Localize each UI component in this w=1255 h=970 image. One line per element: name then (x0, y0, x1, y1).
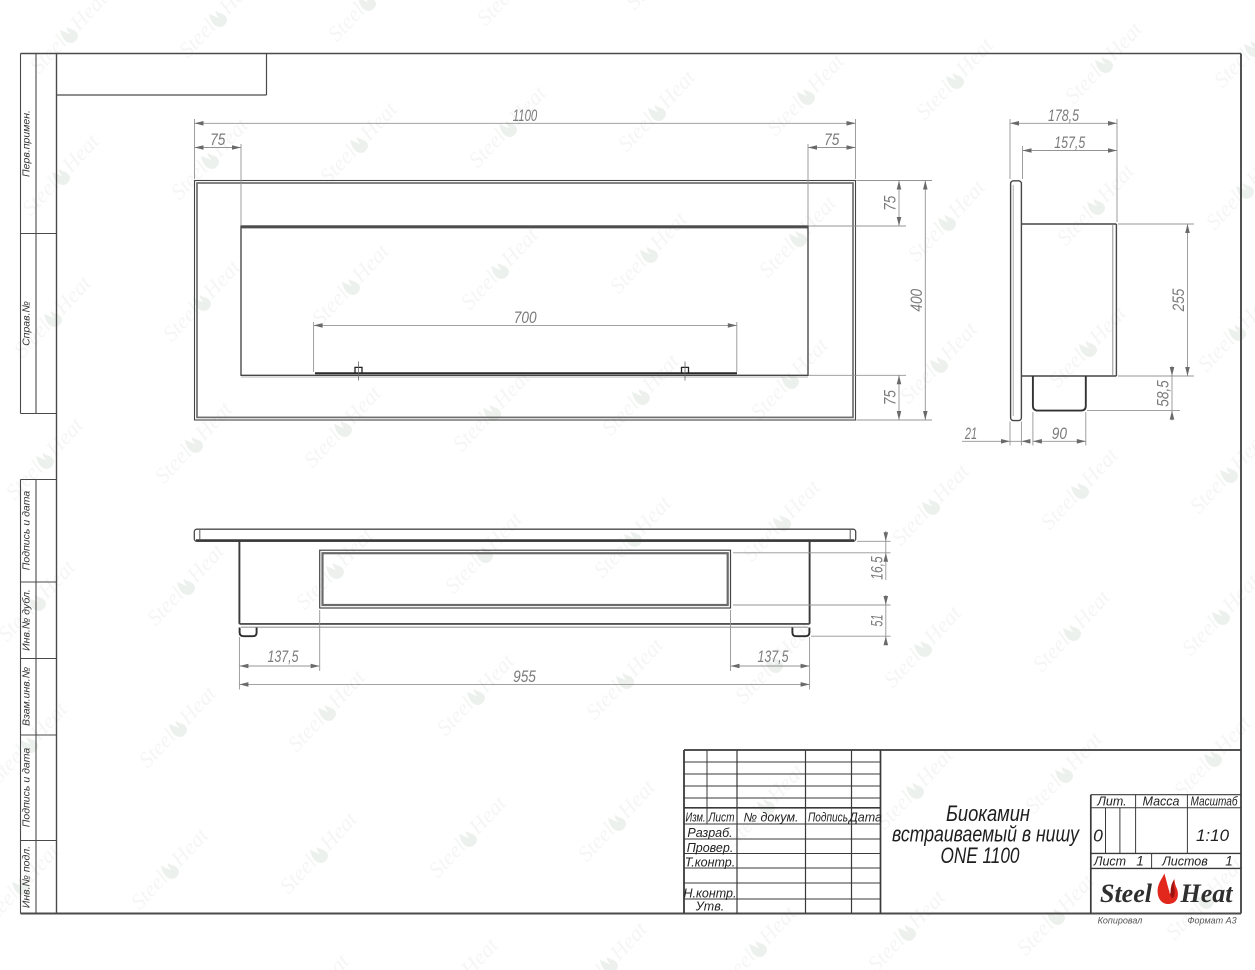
svg-text:75: 75 (882, 195, 900, 211)
svg-text:255: 255 (1170, 288, 1188, 312)
svg-text:Подпись и дата: Подпись и дата (21, 491, 33, 571)
svg-text:Утв.: Утв. (695, 900, 724, 914)
svg-text:Heat: Heat (1180, 879, 1234, 908)
svg-text:75: 75 (210, 131, 226, 149)
svg-text:Подпись и дата: Подпись и дата (21, 748, 33, 828)
svg-text:0: 0 (1093, 826, 1103, 846)
svg-text:178,5: 178,5 (1048, 107, 1080, 125)
svg-text:1:10: 1:10 (1196, 826, 1230, 845)
svg-text:51: 51 (868, 614, 886, 626)
svg-text:Масса: Масса (1143, 795, 1180, 809)
svg-text:Провер.: Провер. (687, 841, 734, 855)
svg-text:157,5: 157,5 (1054, 134, 1086, 152)
svg-text:Дата: Дата (847, 811, 882, 825)
svg-text:Формат А3: Формат А3 (1187, 916, 1236, 926)
svg-text:955: 955 (513, 668, 536, 686)
svg-text:Лист: Лист (1093, 855, 1126, 869)
svg-text:Инв.№ дубл.: Инв.№ дубл. (21, 589, 33, 651)
svg-text:Лит.: Лит. (1096, 795, 1126, 809)
svg-text:Лист: Лист (708, 811, 735, 825)
svg-text:Изм.: Изм. (686, 811, 706, 825)
svg-text:Масштаб: Масштаб (1191, 795, 1239, 809)
svg-text:Разраб.: Разраб. (687, 826, 732, 840)
svg-text:137,5: 137,5 (758, 648, 790, 666)
svg-text:Справ.№: Справ.№ (21, 301, 33, 346)
svg-text:400: 400 (908, 288, 926, 311)
svg-text:ONE 1100: ONE 1100 (941, 843, 1021, 868)
svg-text:137,5: 137,5 (268, 648, 300, 666)
svg-text:Т.контр.: Т.контр. (685, 856, 735, 870)
svg-text:Копировал: Копировал (1098, 916, 1143, 926)
svg-text:Steel: Steel (1100, 879, 1153, 908)
svg-text:1100: 1100 (513, 107, 538, 125)
svg-text:Подпись: Подпись (808, 811, 848, 825)
svg-text:21: 21 (964, 425, 977, 443)
svg-text:700: 700 (514, 309, 537, 327)
svg-text:1: 1 (1136, 854, 1144, 869)
svg-text:Н.контр.: Н.контр. (684, 887, 737, 901)
svg-text:Листов: Листов (1161, 855, 1208, 869)
svg-text:58,5: 58,5 (1155, 380, 1173, 407)
svg-text:75: 75 (882, 389, 900, 405)
svg-text:75: 75 (824, 131, 840, 149)
svg-text:90: 90 (1052, 425, 1068, 443)
svg-text:№ докум.: № докум. (743, 811, 798, 825)
svg-text:16,5: 16,5 (868, 556, 886, 580)
svg-text:1: 1 (1225, 854, 1233, 869)
svg-text:Перв.примен.: Перв.примен. (21, 110, 33, 177)
svg-text:Взам.инв.№: Взам.инв.№ (21, 667, 33, 726)
svg-text:Инв.№ подл.: Инв.№ подл. (21, 846, 33, 908)
